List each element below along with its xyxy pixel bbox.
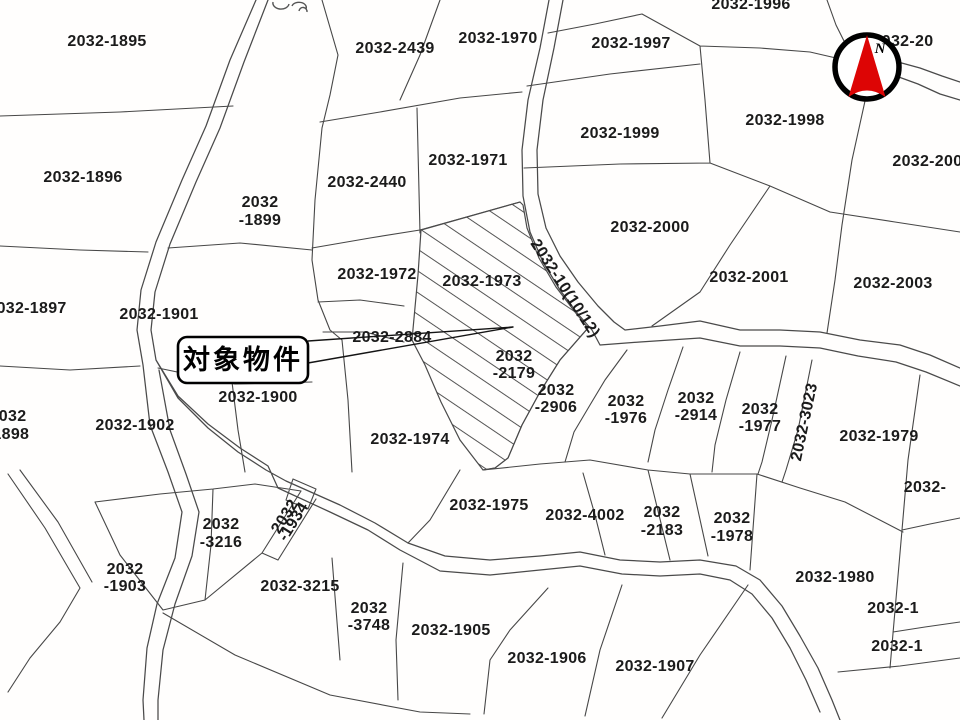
parcel-label: 2032-2002 — [892, 153, 960, 170]
parcel-label: 2032-2440 — [327, 174, 406, 191]
parcel-label: 2032-4002 — [545, 507, 624, 524]
parcel-label: 2032-1979 — [839, 428, 918, 445]
parcel-label: 2032-1998 — [745, 112, 824, 129]
parcel-label: 2032-1971 — [428, 152, 507, 169]
parcel-label: 2032-3215 — [260, 578, 339, 595]
parcel-label: 2032-1897 — [0, 300, 67, 317]
parcel-label: 2032-1902 — [95, 417, 174, 434]
parcel-label: 2032-1975 — [449, 497, 528, 514]
parcel-label: 2032-2906 — [535, 382, 577, 416]
parcel-label: 2032-1896 — [43, 169, 122, 186]
parcel-label: 2032-2439 — [355, 40, 434, 57]
edge-scribble-marks — [273, 2, 307, 12]
parcel-label: 2032-2183 — [641, 504, 683, 539]
parcel-label: 2032-1974 — [370, 431, 449, 448]
parcel-label: 2032-1895 — [67, 33, 146, 50]
parcel-label: 2032-3216 — [200, 516, 242, 551]
parcel-label: 2032-1899 — [239, 194, 281, 229]
parcel-label: 2032-1906 — [507, 650, 586, 667]
subject-parcel-hatch — [412, 202, 588, 470]
callout-label: 対象物件 — [183, 344, 303, 375]
parcel-label: 2032-1898 — [0, 408, 29, 443]
parcel-label: 2032-1900 — [218, 389, 297, 406]
parcel-label: 2032-1976 — [605, 393, 647, 427]
compass-north-label: N — [874, 41, 887, 57]
parcel-label: 2032-2914 — [675, 390, 717, 424]
parcel-label: 2032-2003 — [853, 275, 932, 292]
cadastral-map: 2032-18952032-24392032-19702032-19962032… — [0, 0, 960, 720]
parcel-label: 2032-1934 — [267, 494, 312, 544]
parcel-label: 2032-1970 — [458, 30, 537, 47]
parcel-label: 2032-1977 — [739, 401, 781, 435]
parcel-label: 2032-1996 — [711, 0, 790, 13]
compass: N — [835, 35, 899, 99]
parcel-label: 2032-1980 — [795, 569, 874, 586]
parcel-label: 2032-1973 — [442, 273, 521, 290]
parcel-label: 2032-1 — [871, 638, 923, 655]
parcel-label: 2032-2000 — [610, 219, 689, 236]
parcel-label: 2032-1972 — [337, 266, 416, 283]
parcel-label: 2032-3748 — [348, 600, 390, 634]
parcel-label: 2032-1978 — [711, 510, 753, 545]
parcel-label: 2032-1905 — [411, 622, 490, 639]
parcel-label: 2032-1903 — [104, 561, 146, 595]
parcel-label: 2032-2001 — [709, 269, 788, 286]
parcel-label: 2032-2179 — [493, 348, 535, 382]
parcel-label: 2032-3023 — [788, 382, 821, 463]
parcel-label: 2032-1907 — [615, 658, 694, 675]
parcel-label: 2032- — [904, 479, 946, 496]
parcel-label: 2032-1 — [867, 600, 919, 617]
parcel-label: 2032-1901 — [119, 306, 198, 323]
parcel-label: 2032-1997 — [591, 35, 670, 52]
cadastral-map-page: 2032-18952032-24392032-19702032-19962032… — [0, 0, 960, 720]
parcel-label: 2032-1999 — [580, 125, 659, 142]
